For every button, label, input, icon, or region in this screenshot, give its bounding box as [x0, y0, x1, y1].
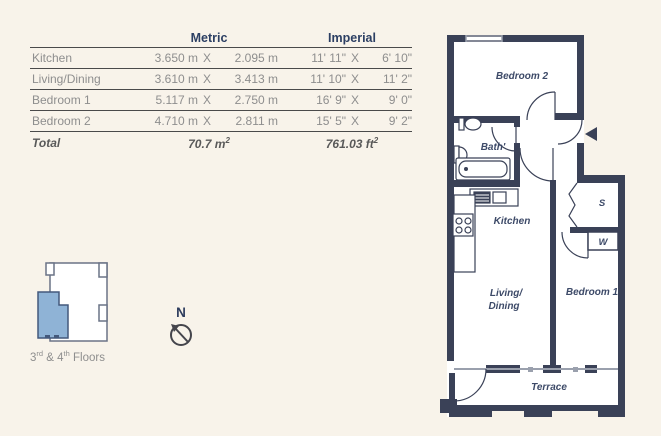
highlight-notch: [45, 335, 50, 338]
wall-bedroom2-right: [577, 35, 584, 120]
table-row: Bedroom 2 4.710 m X 2.811 m 15' 5" X 9' …: [30, 110, 412, 131]
times-symbol: X: [346, 51, 364, 65]
toilet-icon: [465, 118, 481, 130]
glazing-tick: [528, 367, 533, 372]
wall-bath-bottom: [454, 180, 514, 187]
wall-outer-right: [618, 175, 625, 417]
table-row: Kitchen 3.650 m X 2.095 m 11' 11" X 6' 1…: [30, 47, 412, 68]
room-label-bedroom1: Bedroom 1: [566, 287, 619, 298]
building-tab: [99, 263, 107, 277]
compass-n-label: N: [176, 305, 186, 320]
room-label-living-line2: Dining: [488, 301, 519, 312]
imperial-width: 11' 11": [292, 51, 346, 65]
wall-bath-jamb: [514, 116, 520, 127]
times-symbol: X: [346, 72, 364, 86]
wall-bath-right: [514, 143, 520, 187]
terrace-balustrade-bottom: [449, 405, 625, 417]
highlight-notch: [54, 335, 59, 338]
glazing-tick: [573, 367, 578, 372]
floorplan-page: { "table": { "headers": { "metric": "Met…: [0, 0, 661, 436]
balustrade-notch: [492, 411, 524, 418]
wall-bath-top: [447, 116, 520, 123]
room-label-kitchen: Kitchen: [494, 216, 531, 227]
building-tab: [99, 305, 107, 321]
metric-height: 3.413 m: [216, 72, 278, 86]
superscript: 2: [225, 136, 229, 145]
wall-entry-stub: [555, 113, 584, 120]
times-symbol: X: [198, 72, 216, 86]
total-label: Total: [30, 136, 140, 150]
room-label-bath: Bath': [481, 142, 506, 153]
metric-height: 2.095 m: [216, 51, 278, 65]
table-row: Bedroom 1 5.117 m X 2.750 m 16' 9" X 9' …: [30, 89, 412, 110]
room-name: Bedroom 2: [30, 114, 140, 128]
metric-width: 5.117 m: [140, 93, 198, 107]
kitchen-sink-icon: [493, 192, 506, 203]
imperial-height: 6' 10": [364, 51, 412, 65]
floor-plan: Bedroom 2 Bath' Kitchen Living/ Dining B…: [440, 28, 635, 428]
floors-label: 3rd & 4th Floors: [30, 349, 105, 364]
imperial-width: 11' 10": [292, 72, 346, 86]
wall-living-bedroom1-divider: [550, 180, 556, 369]
total-metric: 70.7 m2: [140, 136, 278, 151]
dimensions-table: Metric Imperial Kitchen 3.650 m X 2.095 …: [30, 28, 412, 154]
bathtub-drain: [464, 167, 468, 171]
imperial-width: 16' 9": [292, 93, 346, 107]
room-label-terrace: Terrace: [531, 382, 567, 393]
room-label-wardrobe: W: [599, 237, 609, 248]
room-label-bedroom2: Bedroom 2: [496, 71, 549, 82]
compass-needle: [175, 328, 188, 342]
room-name: Living/Dining: [30, 72, 140, 86]
entrance-arrow-icon: [585, 127, 597, 141]
metric-height: 2.750 m: [216, 93, 278, 107]
building-tab: [46, 263, 54, 275]
metric-width: 4.710 m: [140, 114, 198, 128]
wall-left: [447, 35, 454, 361]
imperial-width: 15' 5": [292, 114, 346, 128]
metric-height: 2.811 m: [216, 114, 278, 128]
imperial-height: 9' 0": [364, 93, 412, 107]
table-total-row: Total 70.7 m2 761.03 ft2: [30, 131, 412, 154]
superscript: 2: [374, 136, 378, 145]
metric-width: 3.610 m: [140, 72, 198, 86]
times-symbol: X: [198, 114, 216, 128]
times-symbol: X: [198, 93, 216, 107]
imperial-height: 11' 2": [364, 72, 412, 86]
room-label-storage: S: [599, 198, 606, 209]
times-symbol: X: [198, 51, 216, 65]
imperial-height: 9' 2": [364, 114, 412, 128]
key-plan: [35, 258, 115, 348]
table-header-row: Metric Imperial: [30, 28, 412, 47]
table-row: Living/Dining 3.610 m X 3.413 m 11' 10" …: [30, 68, 412, 89]
toilet-tank-icon: [459, 118, 464, 130]
room-name: Kitchen: [30, 51, 140, 65]
wall-storage-top: [577, 175, 625, 183]
times-symbol: X: [346, 114, 364, 128]
north-compass-icon: N: [166, 303, 198, 351]
total-imperial: 761.03 ft2: [292, 136, 412, 151]
room-name: Bedroom 1: [30, 93, 140, 107]
room-label-living-line1: Living/: [490, 288, 523, 299]
metric-width: 3.650 m: [140, 51, 198, 65]
header-metric: Metric: [140, 31, 278, 45]
balustrade-notch: [552, 411, 598, 418]
times-symbol: X: [346, 93, 364, 107]
window-bedroom2: [466, 35, 502, 42]
header-imperial: Imperial: [292, 31, 412, 45]
